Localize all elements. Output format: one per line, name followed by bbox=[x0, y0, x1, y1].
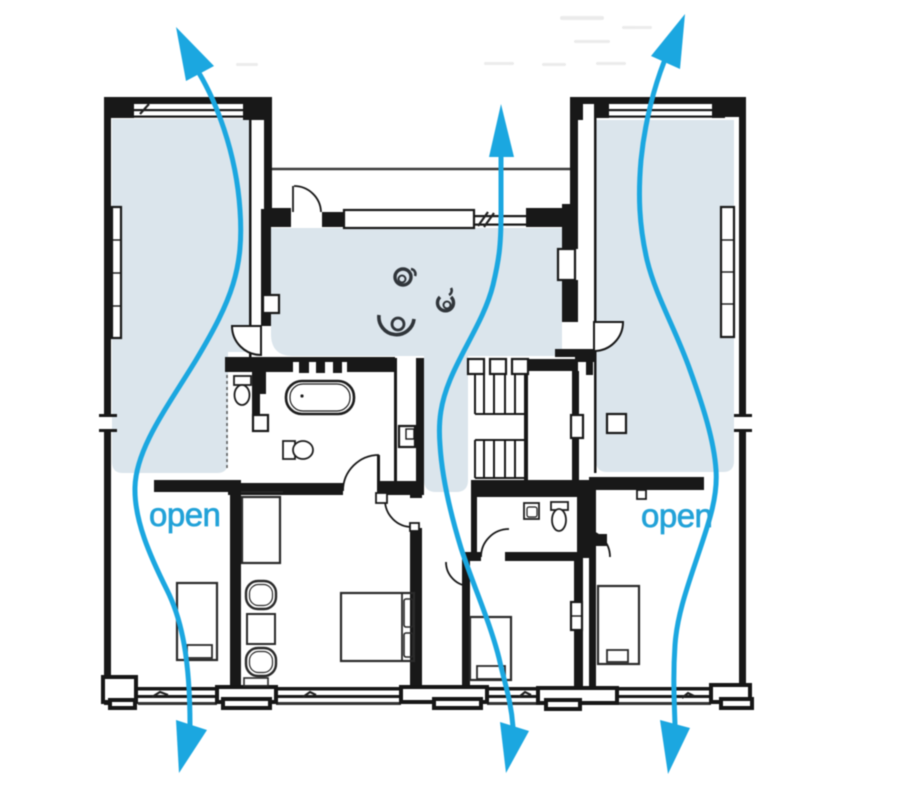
svg-text:open: open bbox=[641, 497, 712, 534]
svg-text:open: open bbox=[149, 496, 220, 533]
